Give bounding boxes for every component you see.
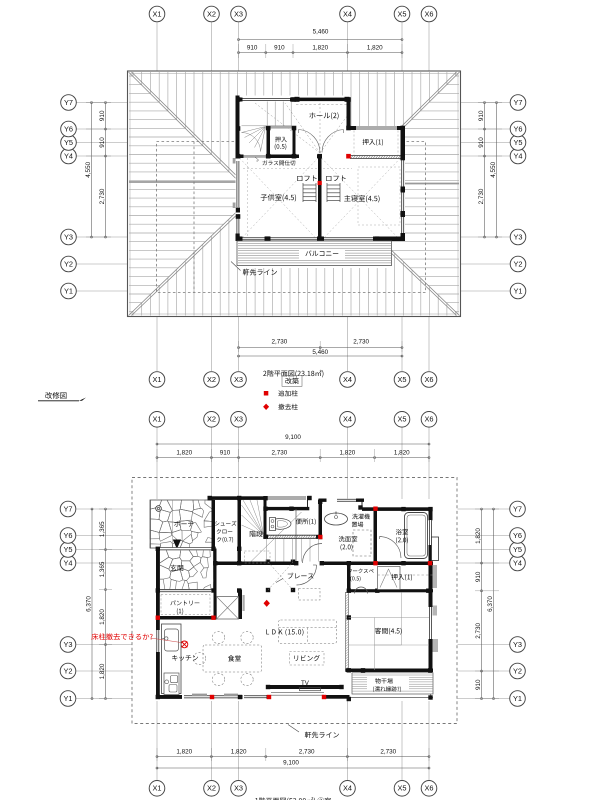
svg-text:X4: X4 [343, 415, 352, 424]
svg-text:X4: X4 [343, 9, 352, 18]
svg-text:Y2: Y2 [513, 259, 522, 268]
svg-text:2,730: 2,730 [299, 749, 315, 756]
svg-text:Y6: Y6 [513, 124, 522, 133]
svg-text:X6: X6 [424, 415, 433, 424]
svg-text:2,730: 2,730 [272, 339, 288, 346]
svg-text:4,550: 4,550 [490, 161, 497, 177]
svg-text:1,820: 1,820 [99, 609, 106, 625]
svg-text:Y4: Y4 [513, 151, 522, 160]
svg-text:X3: X3 [234, 415, 243, 424]
svg-text:1,365: 1,365 [99, 521, 106, 537]
svg-text:1,820: 1,820 [176, 749, 192, 756]
svg-text:2,730: 2,730 [380, 749, 396, 756]
svg-text:X1: X1 [152, 784, 161, 793]
svg-text:X6: X6 [424, 375, 433, 384]
svg-text:2,730: 2,730 [475, 623, 482, 639]
svg-text:1,820: 1,820 [394, 450, 410, 457]
svg-text:910: 910 [274, 45, 285, 52]
svg-text:Y7: Y7 [63, 504, 72, 513]
svg-text:2,730: 2,730 [99, 188, 106, 204]
svg-text:X5: X5 [397, 375, 406, 384]
svg-text:Y3: Y3 [513, 232, 522, 241]
svg-text:Y1: Y1 [513, 286, 522, 295]
svg-text:1,365: 1,365 [99, 561, 106, 577]
svg-text:9,100: 9,100 [283, 760, 299, 767]
svg-text:1,820: 1,820 [231, 749, 247, 756]
svg-text:910: 910 [99, 137, 106, 148]
svg-text:X5: X5 [397, 415, 406, 424]
svg-text:Y7: Y7 [64, 98, 73, 107]
svg-text:X4: X4 [343, 375, 352, 384]
svg-text:Y7: Y7 [513, 504, 522, 513]
svg-text:4,550: 4,550 [85, 161, 92, 177]
svg-text:Y5: Y5 [513, 545, 522, 554]
svg-text:1,820: 1,820 [475, 528, 482, 544]
svg-text:X5: X5 [397, 9, 406, 18]
svg-text:Y7: Y7 [513, 98, 522, 107]
svg-text:X1: X1 [152, 375, 161, 384]
svg-text:Y4: Y4 [63, 558, 72, 567]
svg-text:X4: X4 [343, 784, 352, 793]
svg-text:1,820: 1,820 [340, 450, 356, 457]
svg-text:2,730: 2,730 [478, 188, 485, 204]
svg-text:2,730: 2,730 [353, 339, 369, 346]
svg-text:Y3: Y3 [63, 640, 72, 649]
svg-text:Y4: Y4 [513, 558, 522, 567]
svg-text:Y4: Y4 [64, 151, 73, 160]
svg-text:X3: X3 [234, 9, 243, 18]
svg-text:Y1: Y1 [63, 694, 72, 703]
svg-text:Y2: Y2 [63, 666, 72, 675]
svg-text:Y6: Y6 [63, 531, 72, 540]
svg-text:X3: X3 [234, 375, 243, 384]
svg-text:X1: X1 [152, 415, 161, 424]
svg-text:2,730: 2,730 [272, 450, 288, 457]
svg-text:Y5: Y5 [64, 138, 73, 147]
svg-text:Y3: Y3 [64, 232, 73, 241]
svg-text:910: 910 [475, 679, 482, 690]
svg-text:X2: X2 [207, 784, 216, 793]
svg-text:Y2: Y2 [513, 666, 522, 675]
svg-text:Y3: Y3 [513, 640, 522, 649]
svg-text:X6: X6 [424, 784, 433, 793]
svg-text:910: 910 [247, 45, 258, 52]
svg-text:Y5: Y5 [63, 545, 72, 554]
svg-text:X2: X2 [207, 375, 216, 384]
svg-text:910: 910 [99, 110, 106, 121]
svg-text:9,100: 9,100 [285, 434, 301, 441]
svg-text:Y6: Y6 [513, 531, 522, 540]
svg-text:5,460: 5,460 [313, 29, 329, 36]
svg-text:910: 910 [478, 137, 485, 148]
svg-text:Y1: Y1 [64, 286, 73, 295]
svg-text:910: 910 [220, 450, 231, 457]
svg-text:X1: X1 [152, 9, 161, 18]
svg-text:X2: X2 [207, 9, 216, 18]
svg-text:TV: TV [301, 680, 310, 687]
svg-text:X3: X3 [234, 784, 243, 793]
svg-text:910: 910 [475, 571, 482, 582]
svg-text:1,820: 1,820 [99, 663, 106, 679]
svg-text:6,370: 6,370 [487, 596, 494, 612]
svg-text:X5: X5 [397, 784, 406, 793]
svg-text:Y6: Y6 [64, 124, 73, 133]
svg-text:Y2: Y2 [64, 259, 73, 268]
svg-text:910: 910 [478, 110, 485, 121]
svg-text:1,820: 1,820 [176, 450, 192, 457]
svg-text:X2: X2 [207, 415, 216, 424]
svg-text:5,460: 5,460 [312, 349, 328, 356]
svg-text:1,820: 1,820 [367, 45, 383, 52]
svg-text:Y5: Y5 [513, 138, 522, 147]
svg-text:X6: X6 [424, 9, 433, 18]
svg-text:6,370: 6,370 [86, 596, 93, 612]
svg-text:Y1: Y1 [513, 694, 522, 703]
svg-text:1,820: 1,820 [312, 45, 328, 52]
